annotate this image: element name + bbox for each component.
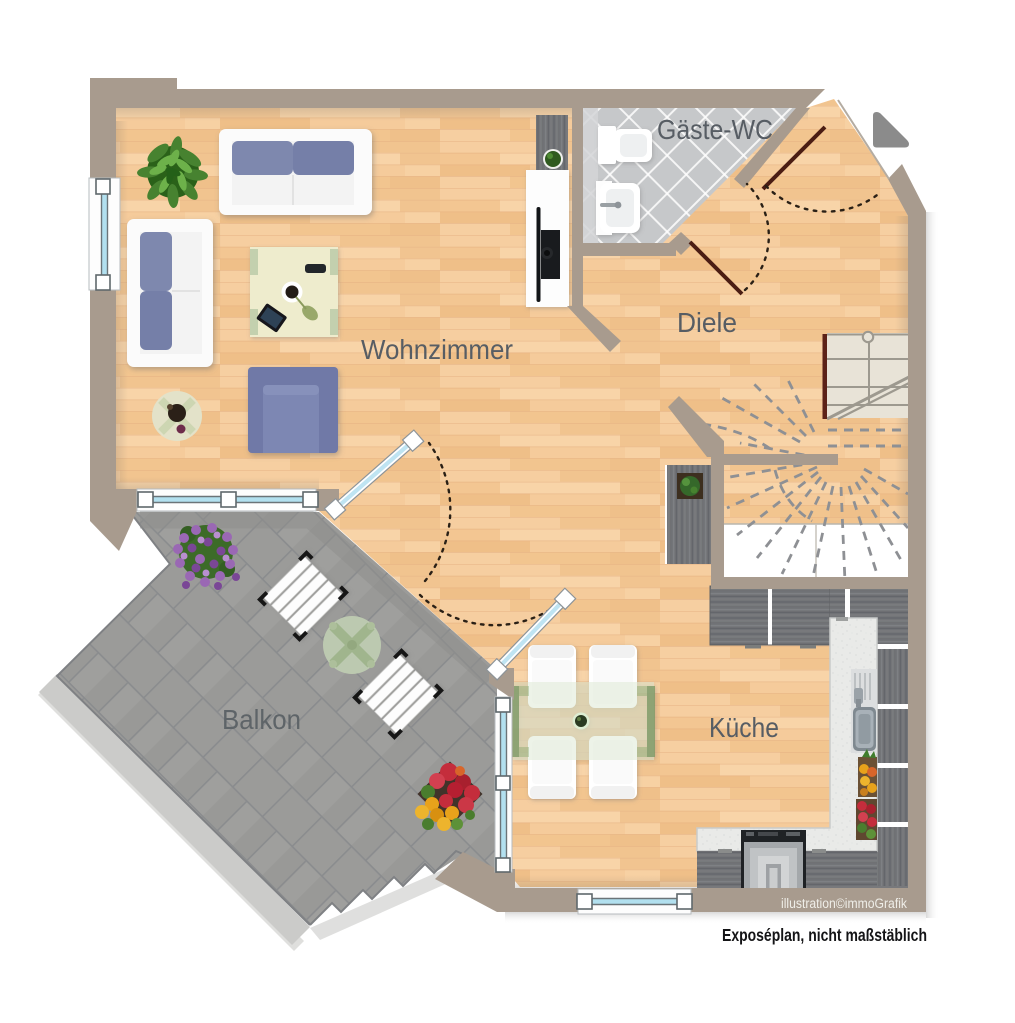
svg-text:illustration©immoGrafik: illustration©immoGrafik (781, 896, 907, 911)
svg-text:Gäste-WC: Gäste-WC (657, 114, 773, 145)
svg-text:Exposéplan, nicht maßstäblich: Exposéplan, nicht maßstäblich (722, 925, 927, 945)
svg-text:Diele: Diele (677, 307, 737, 338)
svg-text:Küche: Küche (709, 712, 779, 743)
svg-text:Wohnzimmer: Wohnzimmer (361, 334, 513, 365)
svg-text:Balkon: Balkon (222, 704, 301, 735)
